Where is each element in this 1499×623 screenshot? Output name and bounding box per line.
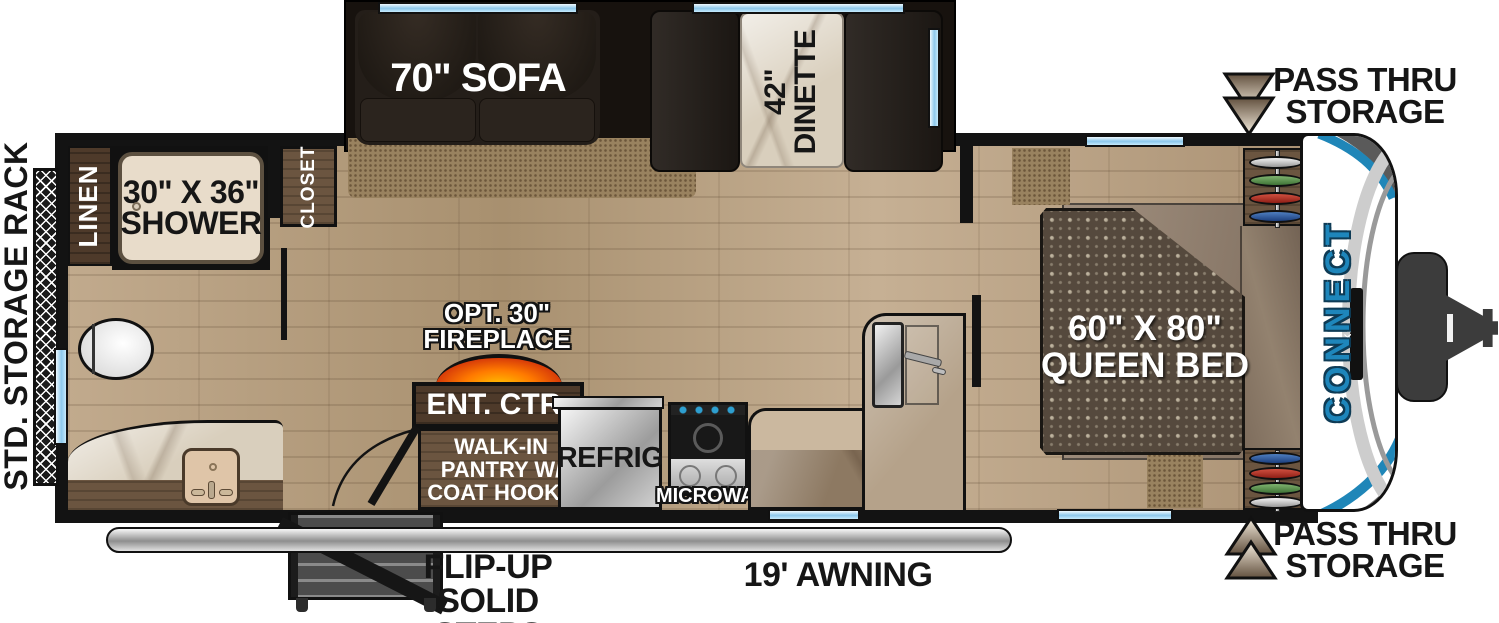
- toilet-tank-line: [92, 324, 95, 374]
- linen-label: LINEN: [75, 146, 103, 266]
- bedroom-carpet-top: [1012, 148, 1070, 205]
- hanger-blue: [1249, 452, 1303, 465]
- sofa-window: [378, 2, 578, 14]
- stove-knob-strip: [671, 405, 745, 415]
- queen-bed-label: 60" X 80" QUEEN BED: [1040, 310, 1250, 384]
- bath-faucet-handle: [219, 489, 233, 496]
- pass-thru-top-label: PASS THRU STORAGE: [1265, 64, 1465, 128]
- hitch-slot: [1447, 314, 1453, 342]
- bedroom-top-window: [1085, 135, 1185, 147]
- bath-faucet-handle: [191, 489, 205, 496]
- stove-burner: [693, 423, 723, 453]
- hanger-green: [1249, 482, 1303, 495]
- bedroom-wall-upper: [960, 146, 973, 223]
- closet-label: CLOSET: [299, 142, 319, 232]
- steps-label: FLIP-UP SOLID STEPS: [388, 550, 588, 623]
- hanger-silver: [1249, 496, 1303, 509]
- shower-label: 30" X 36" SHOWER: [121, 177, 262, 239]
- slideout-carpet: [348, 138, 696, 198]
- bedroom-pocket-door: [972, 295, 981, 387]
- shower: 30" X 36" SHOWER: [112, 146, 270, 270]
- shower-drain: [132, 202, 141, 211]
- floorplan-scene: 70" SOFA 42" DINETTE LINEN 30" X 36" SHO…: [0, 0, 1499, 623]
- hanger-red: [1249, 467, 1303, 480]
- sofa-seat: [360, 98, 476, 142]
- hanger-blue: [1249, 210, 1303, 223]
- vanity-cabinet: [68, 480, 283, 510]
- hanger-silver: [1249, 156, 1303, 169]
- dinette-label: 42" DINETTE: [761, 17, 821, 167]
- hitch-frame: [1396, 252, 1448, 402]
- dinette-window: [692, 2, 905, 14]
- bath-faucet: [208, 481, 215, 499]
- rear-window: [54, 348, 68, 445]
- pass-thru-bottom-label: PASS THRU STORAGE: [1265, 518, 1465, 582]
- hanger-green: [1249, 174, 1303, 187]
- slideout-side-window: [928, 28, 940, 128]
- bedroom-carpet-bottom: [1147, 448, 1203, 508]
- bedroom-bottom-window: [1057, 509, 1173, 521]
- stove-burner: [679, 465, 701, 487]
- fireplace-label: OPT. 30" FIREPLACE: [407, 300, 587, 352]
- sofa-label: 70" SOFA: [368, 58, 588, 98]
- kitchen-sink: [872, 322, 904, 408]
- steps-foot: [296, 598, 308, 612]
- storage-rack-label: STD. STORAGE RACK: [0, 126, 32, 506]
- pantry-label: WALK-IN PANTRY W/ COAT HOOKS: [427, 435, 574, 504]
- bath-pocket-door: [281, 248, 287, 340]
- dinette-bench-left: [650, 10, 740, 172]
- hanger-red: [1249, 192, 1303, 205]
- refrigerator: REFRIG: [558, 407, 662, 510]
- stove-burner: [715, 465, 737, 487]
- bath-sink: [182, 448, 240, 506]
- toilet: [78, 318, 154, 380]
- bath-sink-drain: [209, 463, 217, 471]
- refrigerator-label: REFRIG: [557, 444, 664, 473]
- brand-logo: CONNECT: [1319, 191, 1353, 451]
- stove: [668, 402, 748, 496]
- entertainment-center-label: ENT. CTR.: [426, 390, 569, 420]
- sofa-seat: [479, 98, 595, 142]
- kitchen-bottom-window: [768, 509, 860, 521]
- awning-label: 19' AWNING: [738, 558, 938, 592]
